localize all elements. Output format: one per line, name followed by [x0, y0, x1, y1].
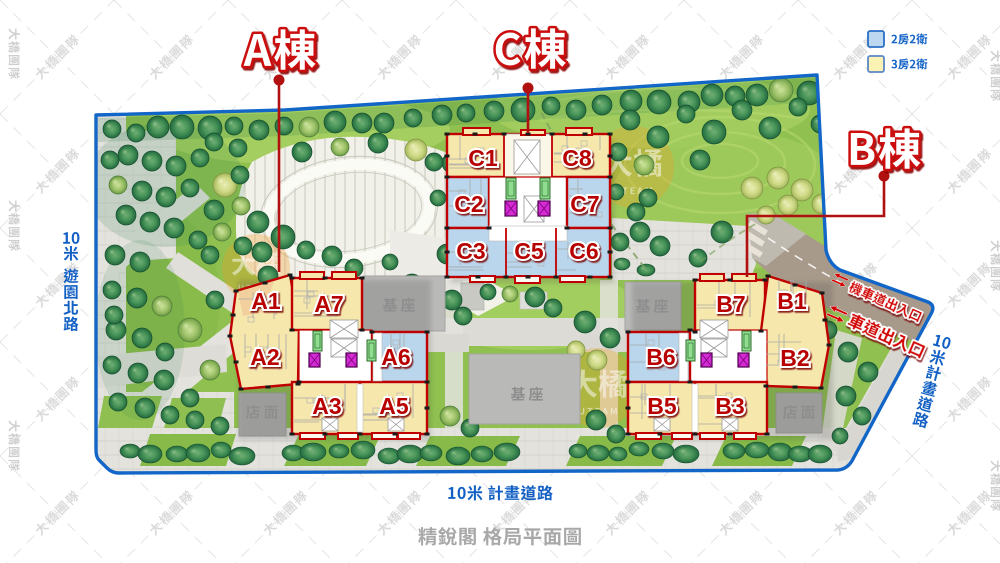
svg-text:B1: B1: [777, 288, 807, 314]
svg-text:C7: C7: [570, 191, 599, 217]
svg-text:A2: A2: [250, 344, 279, 370]
svg-text:C8: C8: [562, 145, 592, 171]
svg-text:B7: B7: [716, 291, 745, 317]
svg-text:B2: B2: [780, 345, 809, 371]
svg-text:B3: B3: [715, 393, 744, 419]
svg-text:C6: C6: [569, 238, 598, 264]
svg-text:B6: B6: [646, 344, 675, 370]
svg-text:A5: A5: [379, 393, 409, 419]
svg-text:A6: A6: [381, 344, 410, 370]
svg-text:C2: C2: [454, 191, 483, 217]
svg-text:A7: A7: [314, 291, 343, 317]
svg-text:C1: C1: [468, 145, 498, 171]
svg-text:B5: B5: [647, 393, 677, 419]
svg-text:C5: C5: [514, 238, 544, 264]
svg-text:C3: C3: [456, 238, 485, 264]
svg-text:A3: A3: [312, 393, 341, 419]
svg-text:A1: A1: [251, 288, 281, 314]
